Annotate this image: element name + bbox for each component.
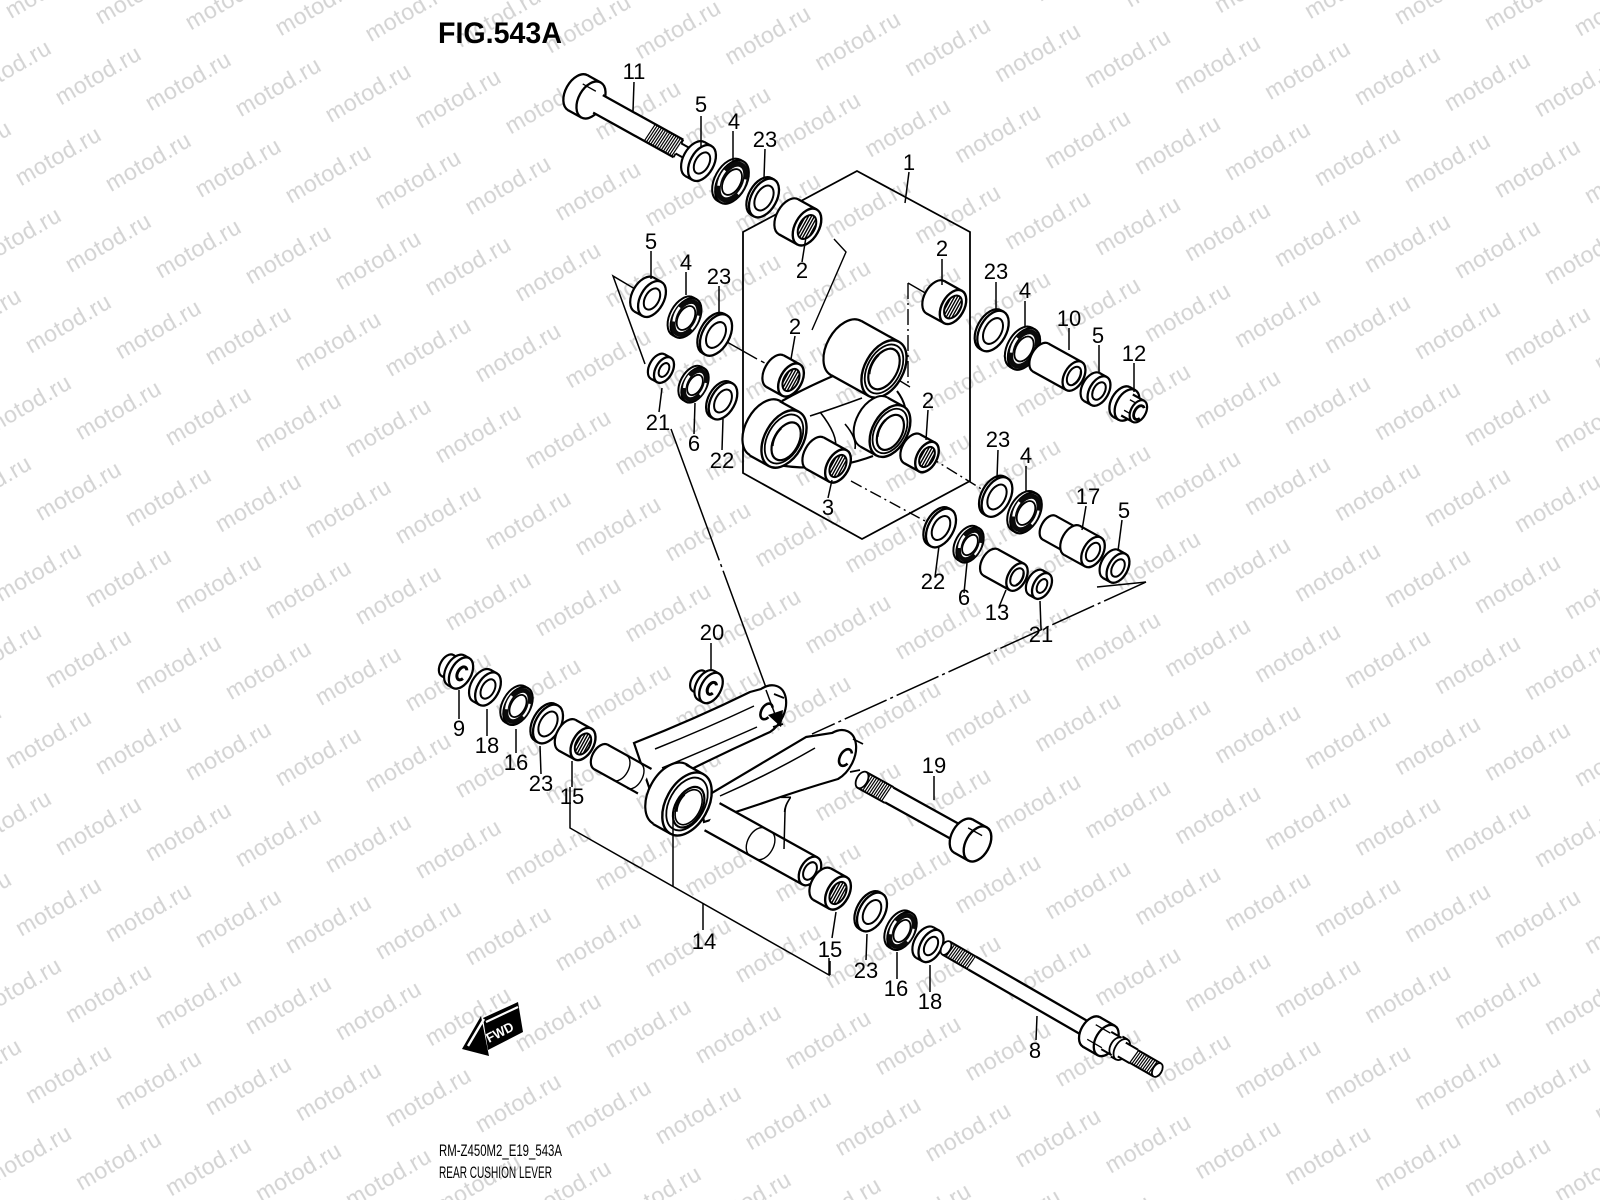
svg-text:16: 16: [884, 976, 908, 1001]
svg-text:5: 5: [695, 92, 707, 117]
svg-text:7: 7: [780, 792, 792, 817]
svg-text:5: 5: [645, 229, 657, 254]
svg-text:RM-Z450M2_E19_543A: RM-Z450M2_E19_543A: [439, 1142, 562, 1160]
svg-text:4: 4: [680, 250, 692, 275]
svg-text:15: 15: [818, 937, 842, 962]
svg-text:14: 14: [692, 929, 716, 954]
svg-text:8: 8: [1029, 1038, 1041, 1063]
svg-text:23: 23: [707, 264, 731, 289]
svg-text:13: 13: [985, 600, 1009, 625]
svg-text:22: 22: [921, 569, 945, 594]
svg-text:19: 19: [922, 753, 946, 778]
svg-text:2: 2: [922, 388, 934, 413]
svg-text:6: 6: [688, 431, 700, 456]
svg-text:22: 22: [710, 448, 734, 473]
svg-text:4: 4: [1019, 278, 1031, 303]
svg-text:1: 1: [903, 150, 915, 175]
svg-text:23: 23: [986, 427, 1010, 452]
svg-text:17: 17: [1076, 484, 1100, 509]
svg-text:23: 23: [854, 958, 878, 983]
svg-text:15: 15: [560, 784, 584, 809]
svg-text:21: 21: [1029, 622, 1053, 647]
svg-text:10: 10: [1057, 306, 1081, 331]
svg-text:REAR CUSHION LEVER: REAR CUSHION LEVER: [439, 1164, 552, 1182]
svg-text:12: 12: [1122, 341, 1146, 366]
svg-text:11: 11: [623, 59, 646, 84]
svg-text:18: 18: [475, 733, 499, 758]
svg-text:4: 4: [1020, 443, 1032, 468]
svg-text:5: 5: [1092, 323, 1104, 348]
svg-text:FIG.543A: FIG.543A: [438, 17, 562, 50]
svg-text:2: 2: [796, 258, 808, 283]
svg-text:3: 3: [822, 495, 834, 520]
svg-text:18: 18: [918, 989, 942, 1014]
svg-text:23: 23: [753, 127, 777, 152]
svg-text:2: 2: [789, 314, 801, 339]
svg-text:6: 6: [958, 585, 970, 610]
svg-text:23: 23: [529, 771, 553, 796]
svg-text:9: 9: [453, 716, 465, 741]
svg-text:21: 21: [646, 410, 670, 435]
svg-text:20: 20: [700, 620, 724, 645]
svg-text:23: 23: [984, 259, 1008, 284]
svg-text:2: 2: [936, 236, 948, 261]
svg-text:5: 5: [1118, 498, 1130, 523]
svg-text:16: 16: [504, 750, 528, 775]
svg-text:4: 4: [728, 109, 740, 134]
